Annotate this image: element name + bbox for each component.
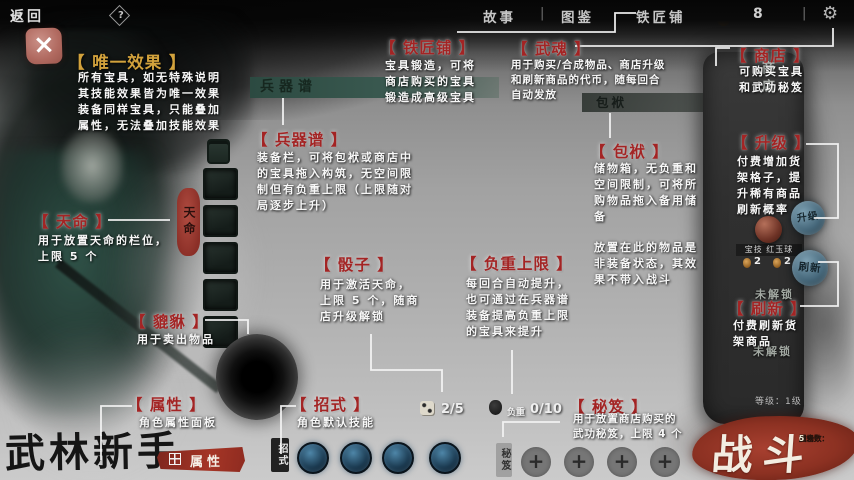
annotation-body-armory: 装备栏，可将包袱或商店中 的宝具拖入构筑，无空间限 制但有负重上限（上限随对 局… — [257, 150, 413, 214]
annotation-title-wuhun: 【 武魂 】 — [512, 37, 591, 59]
annotation-title-dice: 【 骰子 】 — [315, 253, 394, 275]
annotation-body-dice: 用于激活天命， 上限 5 个，随商 店升级解锁 — [320, 277, 419, 325]
annotation-title-attributes: 【 属性 】 — [127, 393, 206, 415]
annotation-body-upgrade: 付费增加货 架格子，提 升稀有商品 刷新概率 — [737, 154, 802, 218]
nav-story[interactable]: 故事 — [483, 6, 516, 26]
currency-count: 8 — [753, 6, 763, 22]
annotation-title-upgrade: 【 升级 】 — [732, 131, 811, 153]
nav-separator: | — [802, 6, 806, 21]
annotation-body-wuhun: 用于购买/合成物品、商店升级 和刷新商品的代币，随每回合 自动发放 — [511, 58, 665, 104]
annotation-body-weight: 每回合自动提升， 也可通过在兵器谱 装备提高负重上限 的宝具来提升 — [466, 276, 570, 340]
annotation-title-destiny: 【 天命 】 — [33, 210, 112, 232]
annotation-title-refresh: 【 刷新 】 — [728, 297, 807, 319]
annotation-body-shop: 可购买宝具 和武功秘笈 — [739, 64, 804, 96]
annotation-body2-bundle: 放置在此的物品是 非装备状态，其效 果不带入战斗 — [594, 240, 698, 288]
annotation-body-pixiu: 用于卖出物品 — [137, 332, 215, 348]
nav-atlas[interactable]: 图鉴 — [561, 6, 594, 26]
annotation-body-blacksmith: 宝具锻造，可将 商店购买的宝具 锻造成高级宝具 — [385, 58, 476, 106]
annotation-title-armory: 【 兵器谱 】 — [252, 128, 347, 150]
annotation-body-unique-effect: 所有宝具，如无特殊说明 其技能效果皆为唯一效果 装备同样宝具，只能叠加 属性，无… — [78, 70, 221, 134]
annotation-title-shop: 【 商店 】 — [731, 44, 810, 66]
annotation-title-blacksmith: 【 铁匠铺 】 — [380, 36, 475, 58]
annotation-title-weight: 【 负重上限 】 — [461, 252, 573, 274]
settings-gear-icon[interactable]: ⚙ — [822, 3, 838, 24]
annotation-body-destiny: 用于放置天命的栏位， 上限 5 个 — [38, 233, 168, 265]
annotation-body-moves: 角色默认技能 — [297, 415, 375, 431]
game-screen: ↩返回 ? × 故事 | 图鉴 铁匠铺 8 | ⚙ 兵器谱 包袱 天命 商店 宝… — [0, 0, 854, 480]
annotation-title-moves: 【 招式 】 — [291, 393, 370, 415]
annotation-body-refresh: 付费刷新货 架商品 — [733, 318, 798, 350]
nav-blacksmith[interactable]: 铁匠铺 — [636, 6, 686, 26]
close-button[interactable]: × — [25, 27, 62, 64]
annotation-body-attributes: 角色属性面板 — [139, 415, 217, 431]
help-icon: ? — [115, 10, 126, 21]
annotation-body-manual: 用于放置商店购买的 武功秘笈，上限 4 个 — [573, 412, 683, 442]
annotation-title-pixiu: 【 貔貅 】 — [130, 310, 209, 332]
annotation-body-bundle: 储物箱，无负重和 空间限制，可将所 购物品拖入备用储 备 — [594, 161, 698, 225]
annotation-title-bundle: 【 包袱 】 — [590, 140, 669, 162]
back-label: 返回 — [10, 6, 44, 26]
nav-separator: | — [540, 6, 544, 21]
